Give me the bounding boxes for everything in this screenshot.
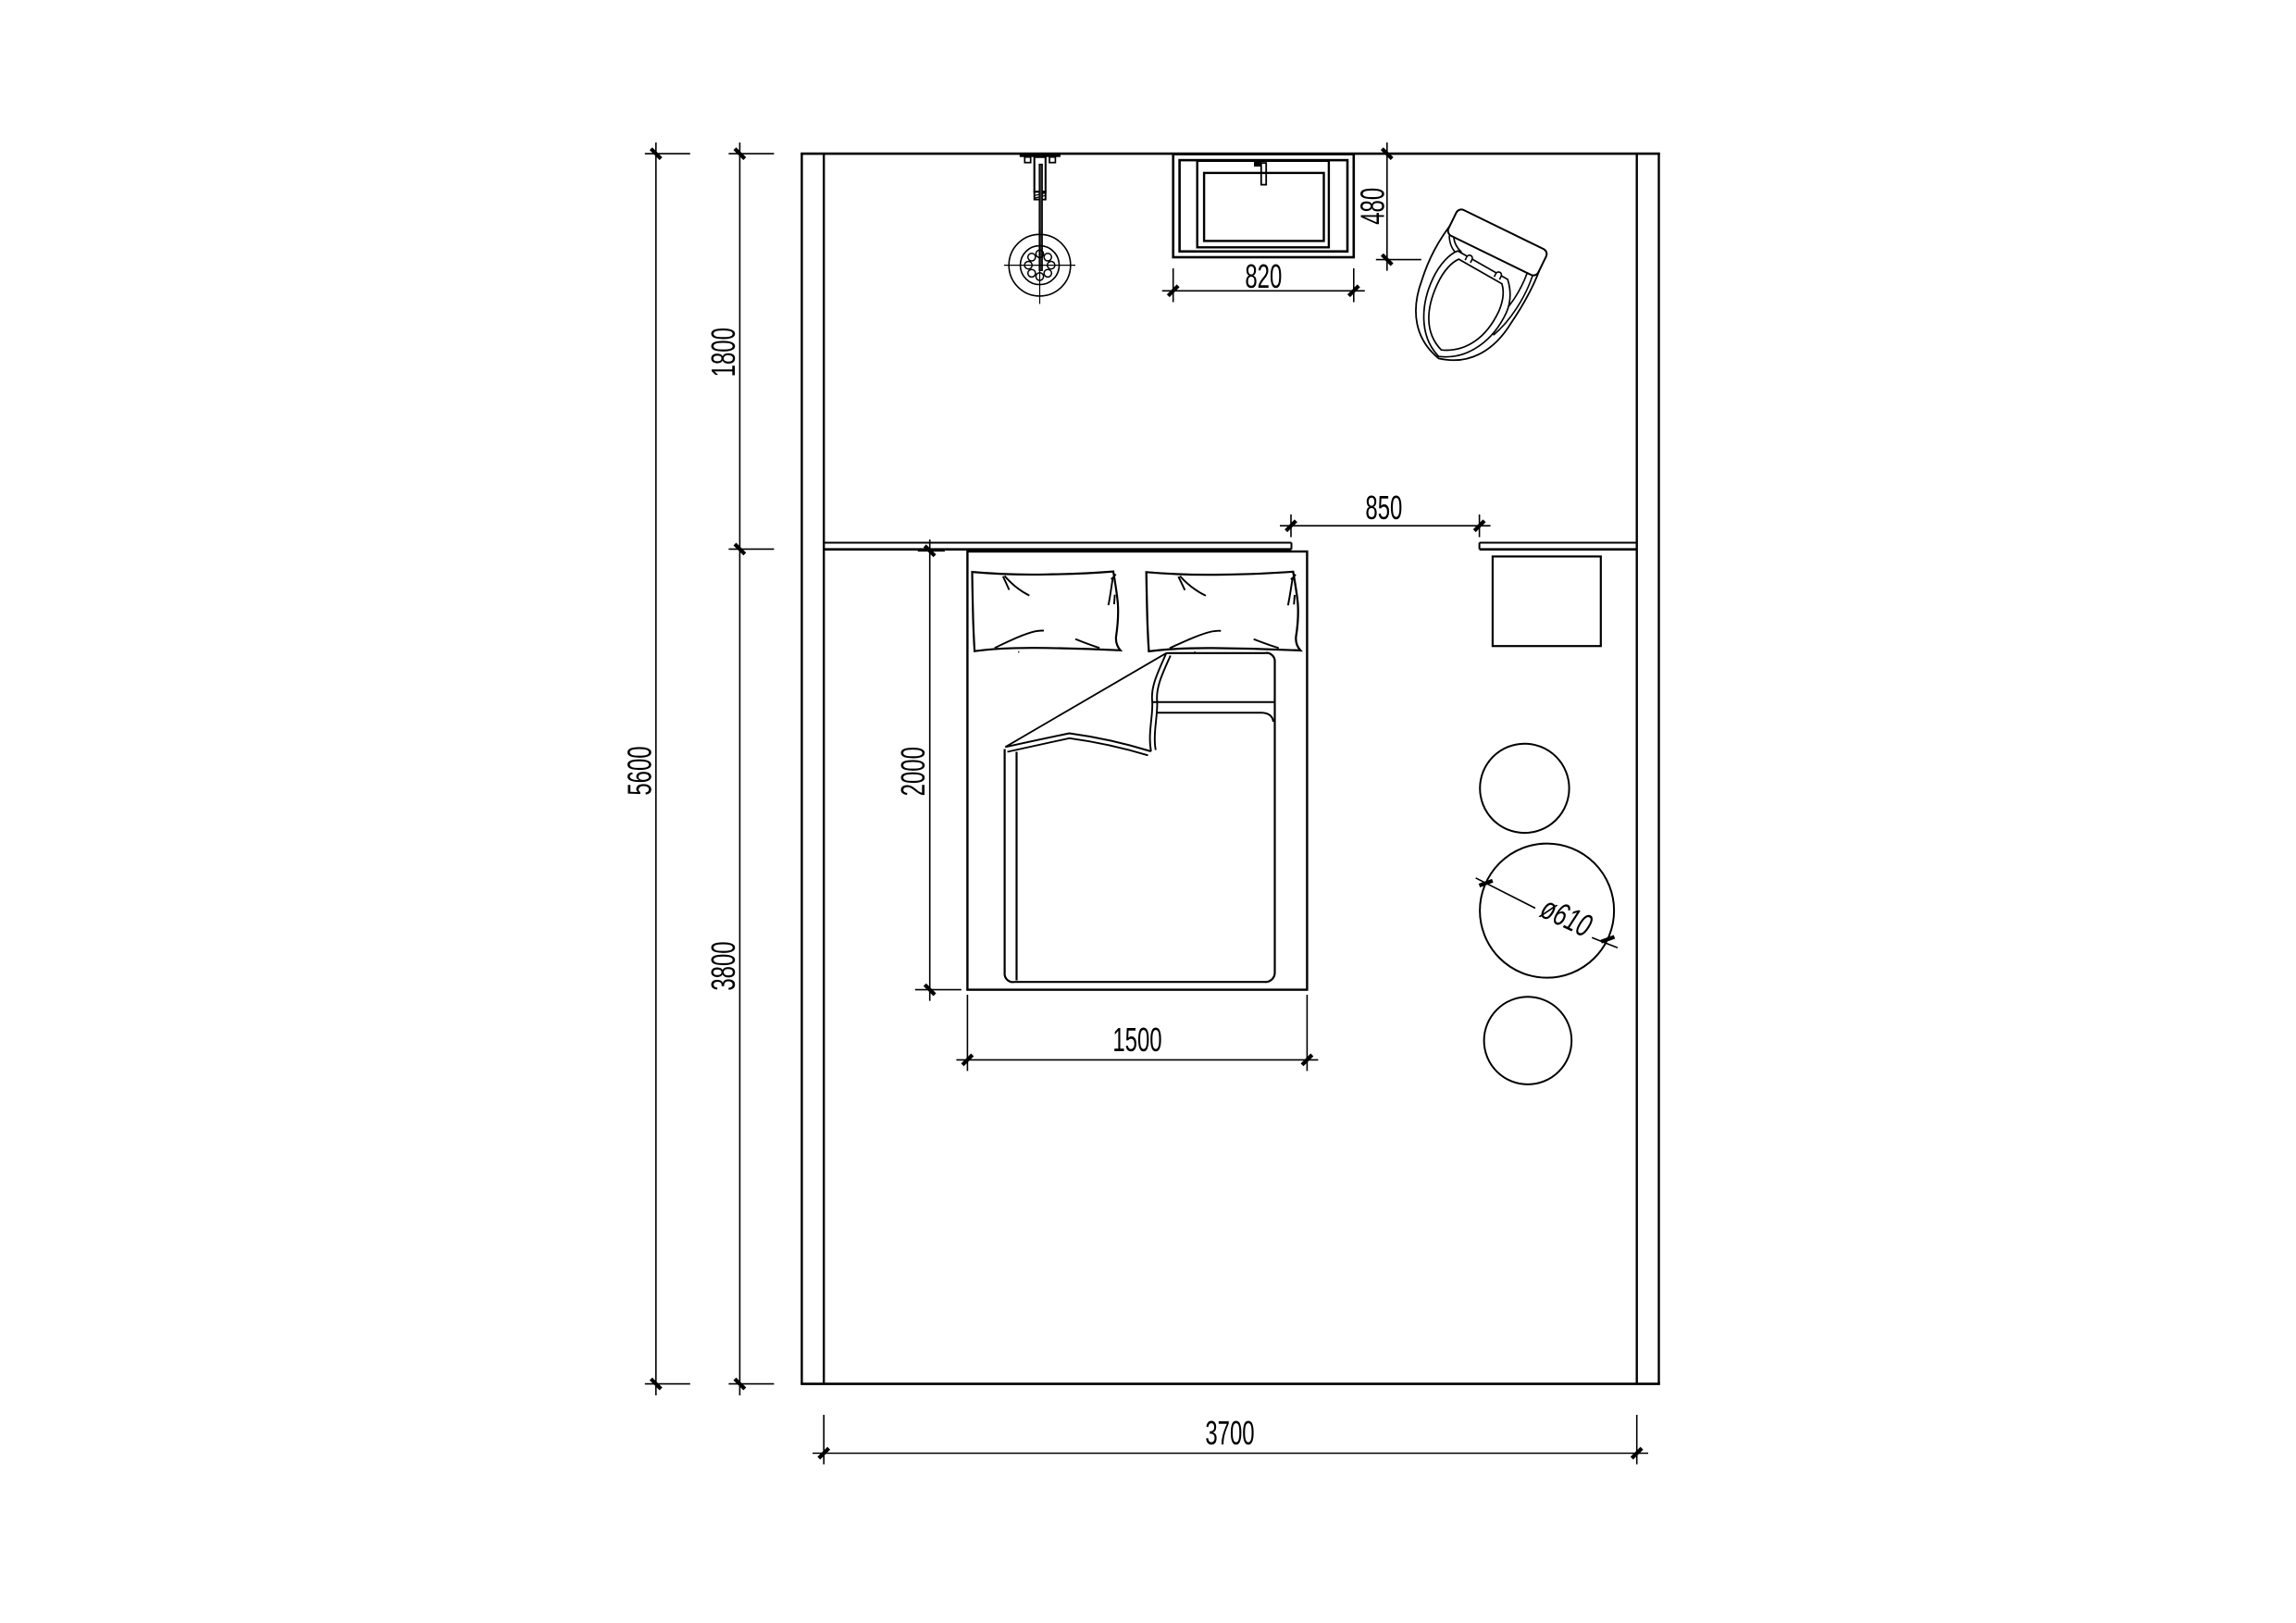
svg-text:5600: 5600 — [622, 746, 659, 795]
svg-text:2000: 2000 — [895, 747, 932, 796]
svg-text:820: 820 — [1245, 258, 1282, 295]
svg-text:3700: 3700 — [1205, 1415, 1254, 1452]
svg-text:850: 850 — [1365, 489, 1402, 527]
svg-text:3800: 3800 — [705, 941, 742, 990]
svg-text:1500: 1500 — [1112, 1022, 1161, 1059]
svg-text:480: 480 — [1355, 188, 1392, 225]
svg-text:1800: 1800 — [705, 328, 742, 377]
